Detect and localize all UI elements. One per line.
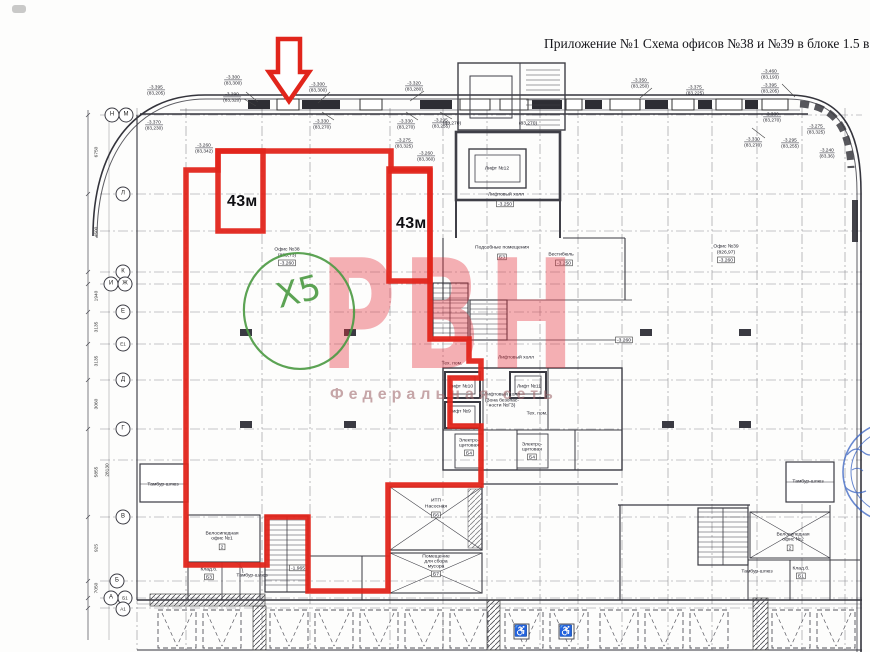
top-text-layer: Приложение №1 Схема офисов №38 и №39 в б…	[0, 0, 870, 652]
area-label-1: 43м	[227, 193, 258, 211]
document-title: Приложение №1 Схема офисов №38 и №39 в б…	[544, 36, 870, 52]
area-label-2: 43м	[396, 215, 427, 233]
scan-artifact	[12, 5, 26, 13]
x5-handwritten-mark: Х5	[272, 267, 325, 317]
floorplan-scan: Лифт №12 Лифтовый холл -3.250 Подсобные …	[0, 0, 870, 652]
